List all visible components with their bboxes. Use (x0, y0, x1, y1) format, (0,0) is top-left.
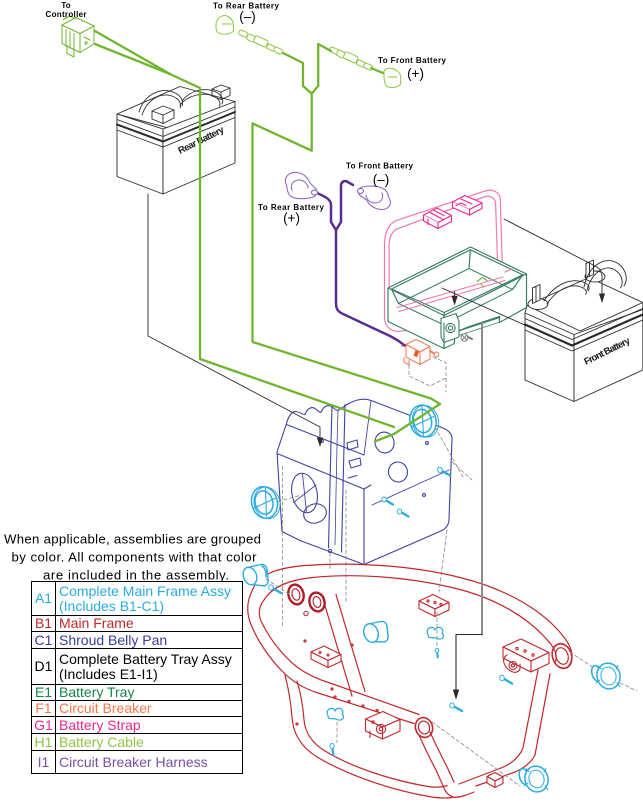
svg-text:To Front Battery: To Front Battery (346, 162, 414, 171)
svg-text:by color. All components with: by color. All components with that color (12, 550, 258, 565)
svg-text:(–): (–) (373, 172, 390, 187)
svg-text:(+): (+) (283, 211, 300, 226)
svg-text:When applicable, assemblies ar: When applicable, assemblies are grouped (4, 532, 261, 547)
svg-text:(+): (+) (407, 66, 424, 81)
svg-text:To: To (61, 1, 70, 10)
svg-text:(–): (–) (239, 9, 256, 24)
svg-text:To Front Battery: To Front Battery (378, 56, 447, 65)
svg-text:Controller: Controller (46, 10, 87, 19)
